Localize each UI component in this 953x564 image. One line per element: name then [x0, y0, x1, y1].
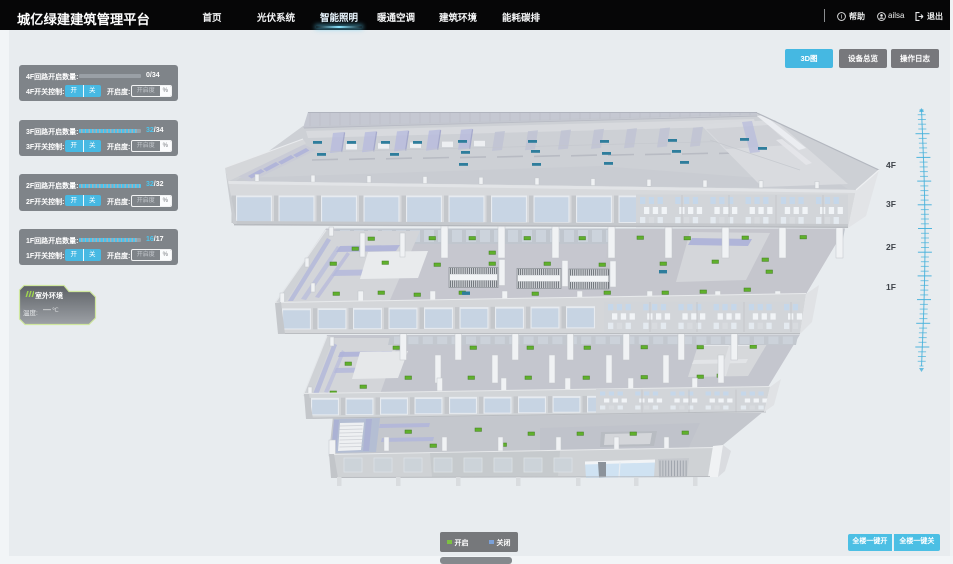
svg-text:i: i: [841, 13, 842, 20]
